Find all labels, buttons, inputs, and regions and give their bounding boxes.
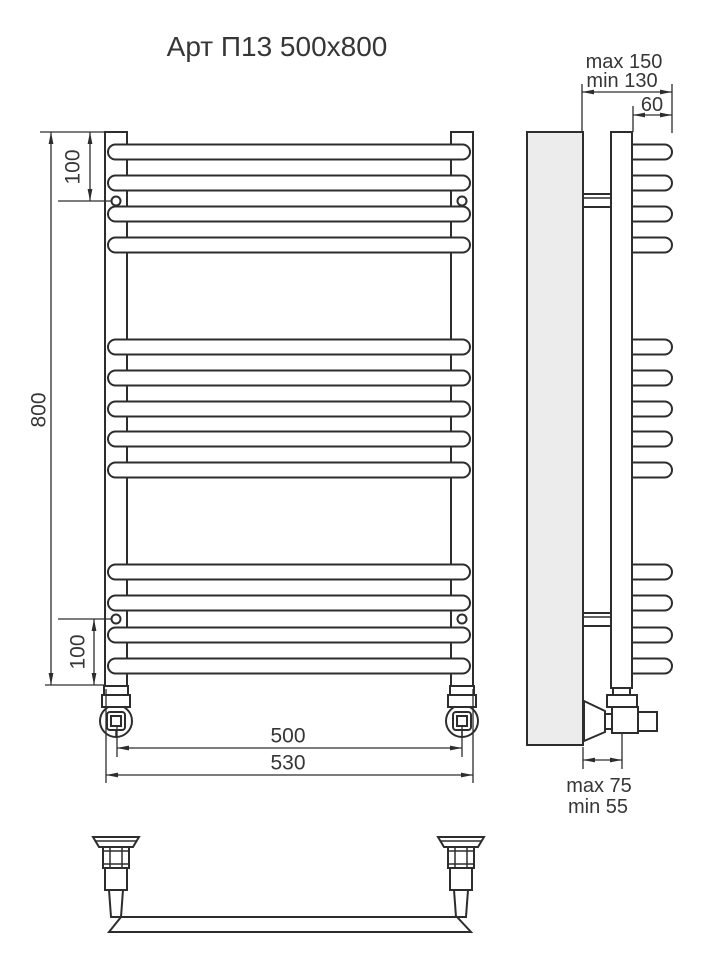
technical-drawing (0, 0, 706, 970)
wall (527, 132, 583, 745)
wall-brackets (583, 194, 611, 626)
dim-depth-max-label: max 150 (586, 52, 663, 72)
side-valve (584, 688, 657, 741)
dim-connections-width-label: 500 (270, 726, 305, 747)
bottom-right-fitting (438, 837, 484, 917)
dim-depth-min-label: min 130 (586, 71, 657, 91)
dim-valve-min-label: min 55 (568, 797, 628, 817)
front-left-fitting (100, 686, 132, 737)
dim-height-label: 800 (29, 392, 50, 427)
bottom-view (93, 837, 484, 932)
drawing-title: Арт П13 500х800 (167, 33, 388, 61)
front-bars (108, 145, 470, 674)
side-post (611, 132, 632, 688)
dim-overall-width-label: 530 (270, 753, 305, 774)
wall-escutcheon (584, 701, 605, 741)
bottom-left-fitting (93, 837, 139, 917)
bottom-bar (109, 917, 471, 932)
drawing-canvas: Арт П13 500х800 800 100 100 500 530 max … (0, 0, 706, 970)
dim-top-offset-label: 100 (63, 149, 84, 184)
dim-bar-extension-label: 60 (641, 95, 663, 115)
front-view (100, 132, 478, 737)
side-view (527, 132, 672, 745)
dim-bottom-offset-label: 100 (68, 634, 89, 669)
dim-valve-max-label: max 75 (566, 776, 632, 796)
